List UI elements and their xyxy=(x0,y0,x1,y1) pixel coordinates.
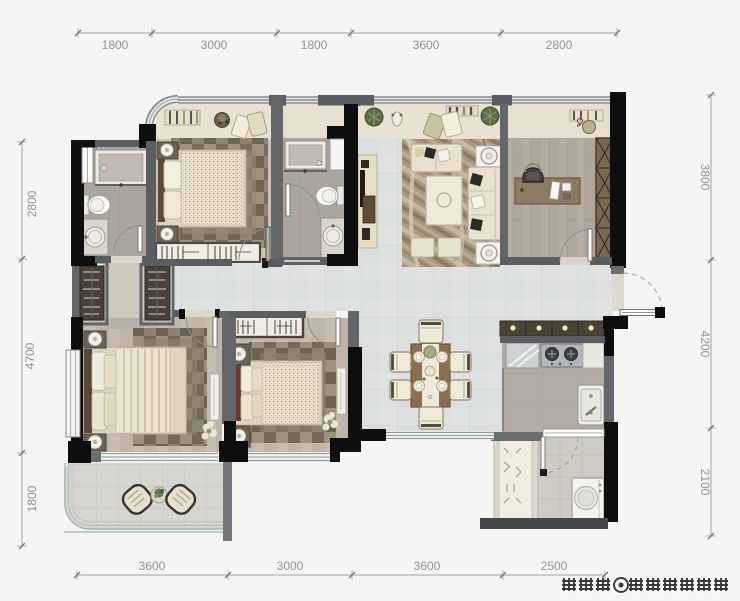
svg-text:3000: 3000 xyxy=(277,559,304,573)
svg-text:3600: 3600 xyxy=(139,559,166,573)
svg-text:3800: 3800 xyxy=(698,164,712,191)
svg-text:2100: 2100 xyxy=(698,469,712,496)
svg-text:1800: 1800 xyxy=(25,485,39,512)
svg-text:1800: 1800 xyxy=(301,38,328,52)
svg-text:4700: 4700 xyxy=(23,342,37,369)
svg-text:1800: 1800 xyxy=(102,38,129,52)
svg-text:3600: 3600 xyxy=(414,559,441,573)
svg-text:3000: 3000 xyxy=(201,38,228,52)
svg-text:2500: 2500 xyxy=(541,559,568,573)
svg-text:4200: 4200 xyxy=(698,331,712,358)
svg-text:3600: 3600 xyxy=(413,38,440,52)
svg-text:2800: 2800 xyxy=(546,38,573,52)
svg-text:2800: 2800 xyxy=(25,190,39,217)
